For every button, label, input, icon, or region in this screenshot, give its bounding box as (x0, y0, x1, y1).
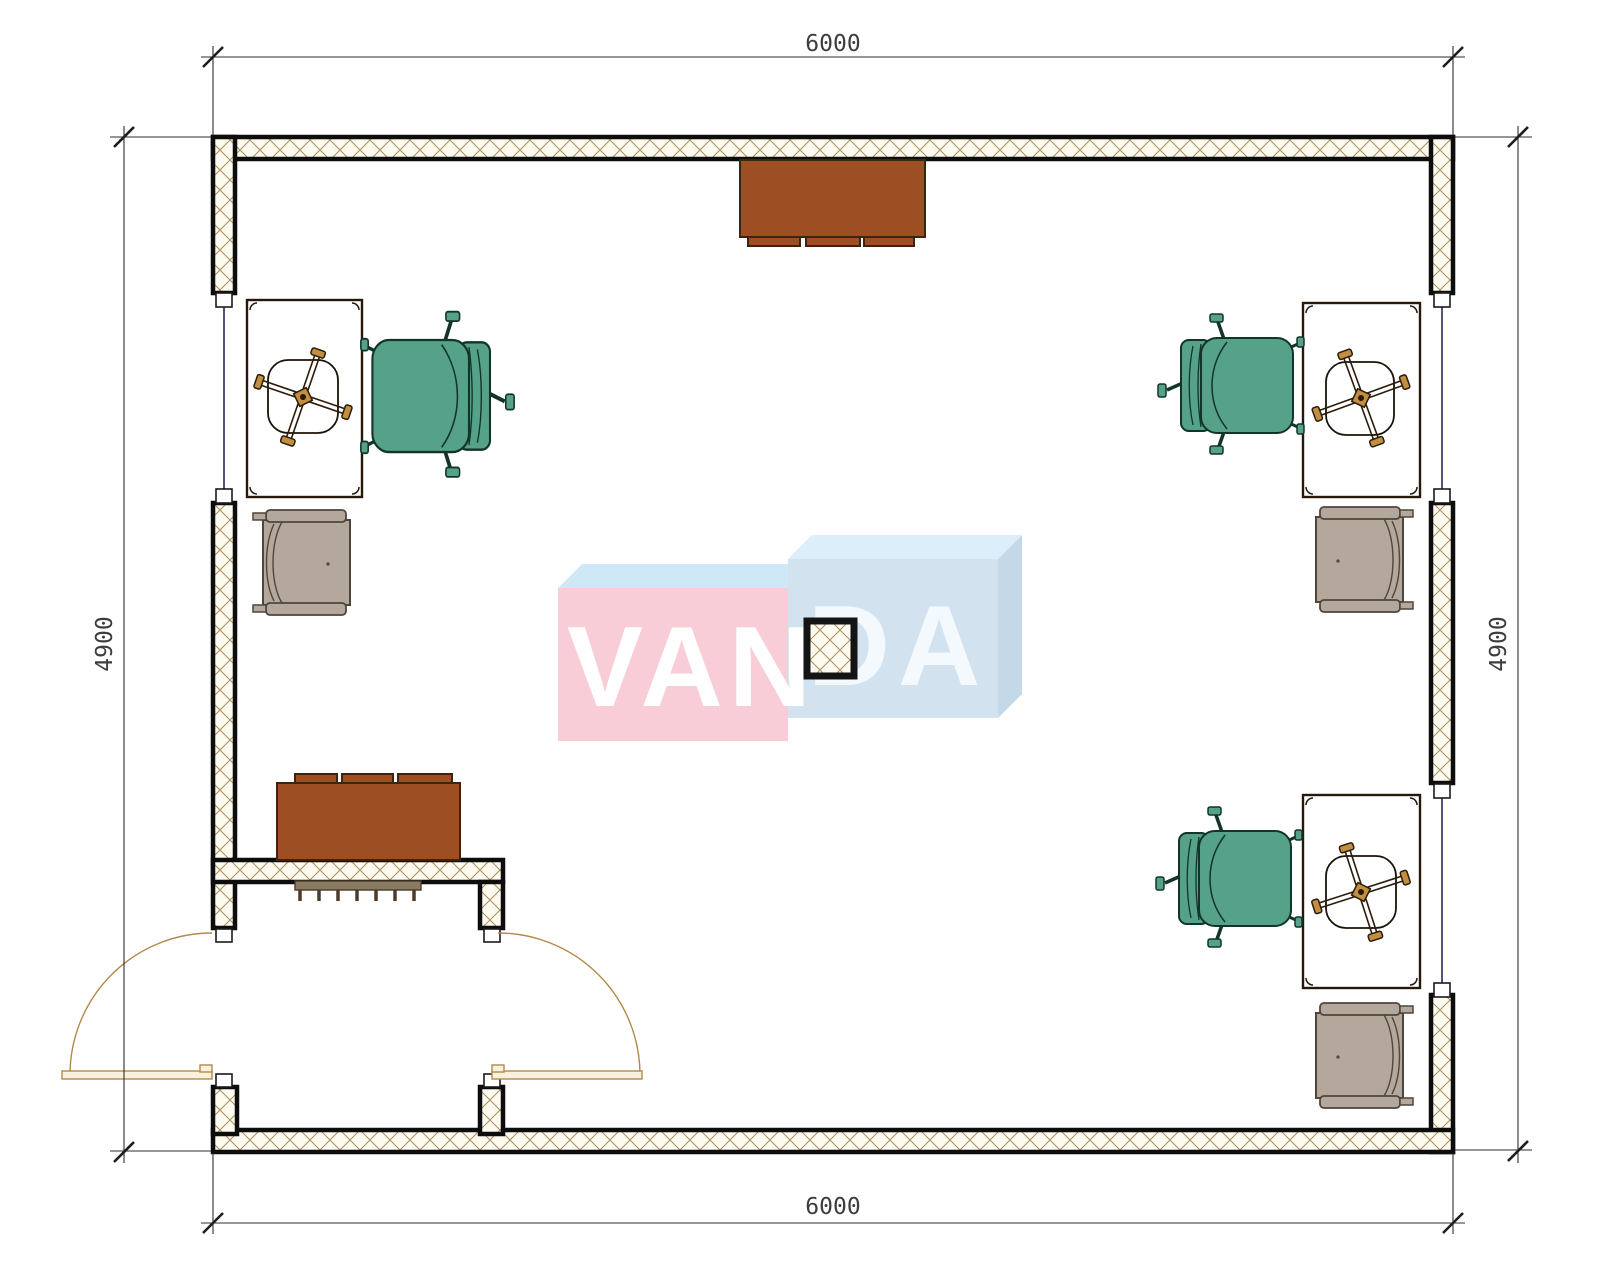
cabinet-foot (295, 774, 337, 783)
armchair-left (253, 510, 350, 615)
door-leaf (62, 1071, 212, 1079)
door-hinge (200, 1065, 212, 1072)
door-jamb-stub-left (213, 1087, 237, 1134)
armchair-top-right (1316, 507, 1413, 612)
wall-partition-vestibule (213, 860, 503, 882)
floor-plan-canvas: VAN DA (0, 0, 1600, 1280)
wall-top (213, 137, 1453, 159)
floor-plan-svg: VAN DA (0, 0, 1600, 1280)
watermark: VAN DA (558, 535, 1022, 741)
window-jamb-marker (1434, 784, 1450, 798)
cabinet-entry (277, 774, 460, 860)
door-leaf (492, 1071, 642, 1079)
door-jamb-marker (216, 929, 232, 942)
window-jamb-marker (1434, 293, 1450, 307)
dimension-label-left: 4900 (92, 616, 118, 671)
dimension-label-right: 4900 (1486, 616, 1512, 671)
watermark-box-left-top (558, 564, 812, 588)
door-jamb-stub-right (480, 1087, 503, 1134)
cabinet-top-wall (740, 160, 925, 246)
cabinet-foot (806, 237, 860, 246)
wall-right-middle (1431, 503, 1453, 783)
window-jamb-marker (1434, 489, 1450, 503)
wall-partition-return (480, 882, 503, 928)
wall-bottom (213, 1130, 1453, 1152)
column (807, 621, 854, 676)
window-jamb-marker (1434, 983, 1450, 997)
cabinet-foot (342, 774, 393, 783)
watermark-text-left: VAN (567, 604, 817, 731)
dimension-label-bottom: 6000 (805, 1194, 860, 1220)
window-jamb-marker (216, 293, 232, 307)
wall-right-upper (1431, 137, 1453, 293)
door-jamb-marker (216, 1074, 232, 1087)
armchair-bottom-right (1316, 1003, 1413, 1108)
door-hinge (492, 1065, 504, 1072)
cabinet-foot (864, 237, 914, 246)
window-jamb-marker (216, 489, 232, 503)
watermark-box-right-side (998, 535, 1022, 718)
cabinet-foot (398, 774, 452, 783)
wall-left-upper (213, 137, 235, 293)
dimension-label-top: 6000 (805, 31, 860, 57)
watermark-box-right-top (788, 535, 1022, 559)
cabinet-foot (748, 237, 800, 246)
door-jamb-marker (484, 929, 500, 942)
